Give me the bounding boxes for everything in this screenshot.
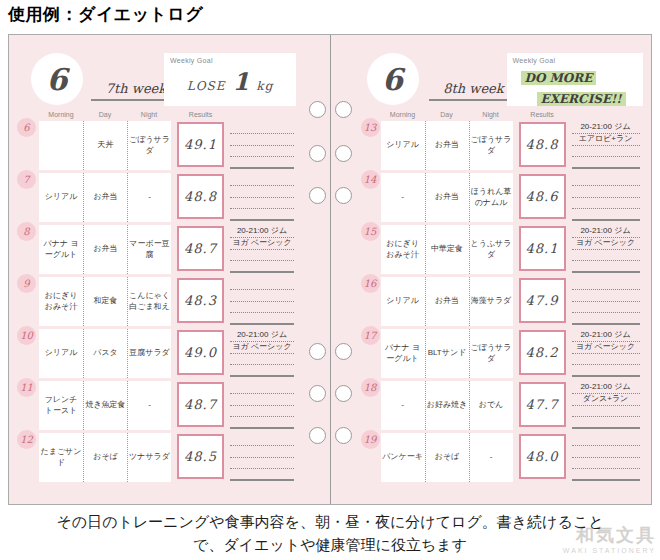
weight-value: 48.3 xyxy=(184,293,217,308)
meal-cells: バナナ ヨーグルト BLTサンド ごぼうサラダ xyxy=(381,329,513,378)
note-underline xyxy=(572,209,640,221)
morning-cell: おにぎり おみそ汁 xyxy=(39,277,83,326)
day-cell: 焼き魚定食 xyxy=(83,381,127,430)
day-number: 9 xyxy=(23,278,29,289)
column-headers: Morning Day Night Results xyxy=(9,111,224,118)
caption-line-2: で、ダイエットや健康管理に役立ちます xyxy=(0,533,660,556)
day-number-badge: 18 xyxy=(361,378,380,397)
week-label: 8th week xyxy=(429,81,519,101)
night-cell: ごぼうサラダ xyxy=(127,121,171,170)
meal-cells: - お弁当 ほうれん草 のナムル xyxy=(381,173,513,222)
night-cell: こんにゃく 白ごま和え xyxy=(127,277,171,326)
binder-hole xyxy=(309,101,326,118)
note-line: ヨガ ベーシック xyxy=(572,342,640,354)
note-line: 20-21:00 ジム xyxy=(230,330,294,342)
meal-cells: シリアル お弁当 ごぼうサラダ xyxy=(381,121,513,170)
day-number: 18 xyxy=(364,382,377,393)
weight-value: 48.1 xyxy=(526,241,559,256)
meal-cells: おにぎり おみそ汁 中華定食 とうふサラダ xyxy=(381,225,513,274)
day-cell: BLTサンド xyxy=(425,329,469,378)
results-box: 48.8 xyxy=(519,122,566,167)
goal-value: 1 xyxy=(231,67,252,96)
day-row: 6 天丼 ごぼうサラダ 49.1 xyxy=(9,121,330,170)
results-box: 48.5 xyxy=(177,434,224,479)
day-rows: 6 天丼 ごぼうサラダ 49.1 7 シリアル お弁当 - 48.8 xyxy=(9,121,330,485)
meal-cells: フレンチ トースト 焼き魚定食 - xyxy=(39,381,171,430)
day-rows: 13 シリアル お弁当 ごぼうサラダ 48.8 20-21:00 ジム エアロビ… xyxy=(331,121,652,485)
col-header-morning: Morning xyxy=(381,111,425,118)
notes-area xyxy=(230,277,294,325)
note-line xyxy=(230,186,294,198)
day-row: 11 フレンチ トースト 焼き魚定食 - 48.7 xyxy=(9,381,330,430)
day-row: 7 シリアル お弁当 - 48.8 xyxy=(9,173,330,222)
binder-hole xyxy=(335,385,352,402)
day-row: 15 おにぎり おみそ汁 中華定食 とうふサラダ 48.1 20-21:00 ジ… xyxy=(331,225,652,274)
note-line xyxy=(572,434,640,446)
day-number-badge: 19 xyxy=(361,430,380,449)
weight-value: 48.7 xyxy=(184,241,217,256)
day-number-badge: 13 xyxy=(361,118,380,137)
weekly-goal-box: Weekly Goal LOSE 1 kg xyxy=(164,53,296,106)
note-line: 20-21:00 ジム xyxy=(572,382,640,394)
day-row: 17 バナナ ヨーグルト BLTサンド ごぼうサラダ 48.2 20-21:00… xyxy=(331,329,652,378)
notes-area xyxy=(572,277,640,325)
weight-value: 48.8 xyxy=(184,189,217,204)
note-underline xyxy=(572,261,640,273)
note-line xyxy=(572,250,640,262)
day-number-badge: 14 xyxy=(361,170,380,189)
col-header-night: Night xyxy=(127,111,171,118)
note-underline xyxy=(230,365,294,377)
page-title: 使用例：ダイエットログ xyxy=(8,3,203,26)
note-line xyxy=(572,278,640,290)
notes-area: 20-21:00 ジム ヨガ ベーシック xyxy=(230,225,294,273)
note-line xyxy=(230,354,294,366)
day-cell: お弁当 xyxy=(425,173,469,222)
planner-spread: 6 7th week Weekly Goal LOSE 1 kg Morning… xyxy=(8,34,652,505)
night-cell: ほうれん草 のナムル xyxy=(469,173,513,222)
night-cell: とうふサラダ xyxy=(469,225,513,274)
note-line xyxy=(230,394,294,406)
note-line: ヨガ ベーシック xyxy=(230,238,294,250)
day-number: 16 xyxy=(364,278,377,289)
morning-cell: - xyxy=(381,173,425,222)
day-cell: 和定食 xyxy=(83,277,127,326)
night-cell: - xyxy=(127,173,171,222)
note-line xyxy=(230,134,294,146)
note-line xyxy=(230,446,294,458)
note-line xyxy=(572,354,640,366)
note-underline xyxy=(230,469,294,481)
morning-cell: シリアル xyxy=(39,173,83,222)
notes-area: 20-21:00 ジム エアロビ+ラン xyxy=(572,121,640,169)
meal-cells: バナナ ヨーグルト お弁当 マーボー豆腐 xyxy=(39,225,171,274)
day-row: 16 シリアル お弁当 海藻サラダ 47.9 xyxy=(331,277,652,326)
note-line xyxy=(572,174,640,186)
day-number-badge: 10 xyxy=(17,326,36,345)
notes-area xyxy=(230,433,294,481)
day-row: 9 おにぎり おみそ汁 和定食 こんにゃく 白ごま和え 48.3 xyxy=(9,277,330,326)
note-line xyxy=(230,458,294,470)
note-underline xyxy=(230,261,294,273)
day-row: 14 - お弁当 ほうれん草 のナムル 48.6 xyxy=(331,173,652,222)
day-cell: 中華定食 xyxy=(425,225,469,274)
day-number: 15 xyxy=(364,226,377,237)
day-row: 8 バナナ ヨーグルト お弁当 マーボー豆腐 48.7 20-21:00 ジム … xyxy=(9,225,330,274)
day-number-badge: 16 xyxy=(361,274,380,293)
binder-hole xyxy=(335,427,352,444)
note-line xyxy=(572,458,640,470)
note-underline xyxy=(572,417,640,429)
day-number: 19 xyxy=(364,434,377,445)
day-number-badge: 7 xyxy=(17,170,36,189)
note-line xyxy=(230,198,294,210)
day-number: 8 xyxy=(23,226,29,237)
col-header-results: Results xyxy=(519,111,566,118)
results-box: 49.1 xyxy=(177,122,224,167)
day-number: 17 xyxy=(364,330,377,341)
note-line xyxy=(230,434,294,446)
morning-cell: フレンチ トースト xyxy=(39,381,83,430)
day-number-badge: 17 xyxy=(361,326,380,345)
night-cell: ごぼうサラダ xyxy=(469,329,513,378)
col-header-day: Day xyxy=(425,111,469,118)
day-number: 12 xyxy=(20,434,33,445)
note-line xyxy=(230,146,294,158)
goal-line-2: EXERCISE!! xyxy=(537,92,626,106)
note-line xyxy=(572,186,640,198)
night-cell: - xyxy=(469,433,513,482)
note-line xyxy=(572,198,640,210)
night-cell: ツナサラダ xyxy=(127,433,171,482)
day-cell: お弁当 xyxy=(83,225,127,274)
weekly-goal-label: Weekly Goal xyxy=(513,57,556,64)
weight-value: 48.8 xyxy=(526,137,559,152)
results-box: 48.8 xyxy=(177,174,224,219)
note-line xyxy=(230,382,294,394)
binder-hole xyxy=(309,343,326,360)
notes-area xyxy=(230,121,294,169)
caption-text: その日のトレーニングや食事内容を、朝・昼・夜に分けてログ。書き続けること で、ダ… xyxy=(0,510,660,557)
night-cell: マーボー豆腐 xyxy=(127,225,171,274)
results-box: 48.2 xyxy=(519,330,566,375)
notes-area: 20-21:00 ジム ダンス+ラン xyxy=(572,381,640,429)
weight-value: 47.9 xyxy=(526,293,559,308)
column-headers: Morning Day Night Results xyxy=(331,111,566,118)
morning-cell: シリアル xyxy=(381,277,425,326)
results-box: 48.0 xyxy=(519,434,566,479)
results-box: 49.0 xyxy=(177,330,224,375)
goal-pre: LOSE xyxy=(187,79,226,93)
day-row: 10 シリアル パスタ 豆腐サラダ 49.0 20-21:00 ジム ヨガ ベー… xyxy=(9,329,330,378)
meal-cells: 天丼 ごぼうサラダ xyxy=(39,121,171,170)
day-number-badge: 6 xyxy=(17,118,36,137)
results-box: 48.3 xyxy=(177,278,224,323)
day-cell: おそば xyxy=(83,433,127,482)
night-cell: - xyxy=(127,381,171,430)
meal-cells: シリアル パスタ 豆腐サラダ xyxy=(39,329,171,378)
day-row: 13 シリアル お弁当 ごぼうサラダ 48.8 20-21:00 ジム エアロビ… xyxy=(331,121,652,170)
month-badge: 6 xyxy=(31,53,83,105)
day-number: 6 xyxy=(23,122,29,133)
morning-cell: おにぎり おみそ汁 xyxy=(381,225,425,274)
day-cell: パスタ xyxy=(83,329,127,378)
results-box: 48.7 xyxy=(177,226,224,271)
col-header-morning: Morning xyxy=(39,111,83,118)
results-box: 48.6 xyxy=(519,174,566,219)
binder-hole xyxy=(335,101,352,118)
notes-area xyxy=(572,173,640,221)
weight-value: 48.6 xyxy=(526,189,559,204)
note-underline xyxy=(572,157,640,169)
note-line xyxy=(572,290,640,302)
weight-value: 49.1 xyxy=(184,137,217,152)
meal-cells: シリアル お弁当 - xyxy=(39,173,171,222)
weekly-goal-label: Weekly Goal xyxy=(170,57,213,64)
notes-area xyxy=(572,433,640,481)
night-cell: 海藻サラダ xyxy=(469,277,513,326)
morning-cell: - xyxy=(381,381,425,430)
day-number: 10 xyxy=(20,330,33,341)
day-cell: お弁当 xyxy=(425,121,469,170)
day-number: 11 xyxy=(20,382,33,393)
planner-page-right: 6 8th week Weekly Goal DO MORE EXERCISE!… xyxy=(331,35,652,504)
note-line: エアロビ+ラン xyxy=(572,134,640,146)
morning-cell: パンケーキ xyxy=(381,433,425,482)
binder-hole xyxy=(309,427,326,444)
binder-hole xyxy=(309,145,326,162)
binder-hole xyxy=(309,385,326,402)
results-box: 48.1 xyxy=(519,226,566,271)
weekly-goal-box: Weekly Goal DO MORE EXERCISE!! xyxy=(507,53,643,106)
night-cell: 豆腐サラダ xyxy=(127,329,171,378)
day-number-badge: 15 xyxy=(361,222,380,241)
weight-value: 48.7 xyxy=(184,397,217,412)
day-number: 7 xyxy=(23,174,29,185)
day-row: 19 パンケーキ おそば - 48.0 xyxy=(331,433,652,482)
weight-value: 48.2 xyxy=(526,345,559,360)
morning-cell: バナナ ヨーグルト xyxy=(39,225,83,274)
goal-unit: kg xyxy=(256,79,273,93)
day-number: 14 xyxy=(364,174,377,185)
weight-value: 49.0 xyxy=(184,345,217,360)
weight-value: 47.7 xyxy=(526,397,559,412)
note-line xyxy=(572,406,640,418)
note-underline xyxy=(230,417,294,429)
note-line xyxy=(230,250,294,262)
col-header-day: Day xyxy=(83,111,127,118)
notes-area: 20-21:00 ジム ヨガ ベーシック xyxy=(230,329,294,377)
day-number-badge: 9 xyxy=(17,274,36,293)
morning-cell xyxy=(39,121,83,170)
note-line xyxy=(572,302,640,314)
note-line: 20-21:00 ジム xyxy=(230,226,294,238)
binder-hole xyxy=(335,343,352,360)
note-underline xyxy=(230,313,294,325)
weight-value: 48.0 xyxy=(526,449,559,464)
month-badge: 6 xyxy=(367,53,419,105)
meal-cells: パンケーキ おそば - xyxy=(381,433,513,482)
note-line xyxy=(230,302,294,314)
day-number: 13 xyxy=(364,122,377,133)
note-underline xyxy=(230,157,294,169)
note-line xyxy=(230,406,294,418)
notes-area: 20-21:00 ジム ヨガ ベーシック xyxy=(572,225,640,273)
day-cell: 天丼 xyxy=(83,121,127,170)
meal-cells: たまごサンド おそば ツナサラダ xyxy=(39,433,171,482)
binder-hole xyxy=(335,145,352,162)
day-number-badge: 11 xyxy=(17,378,36,397)
notes-area xyxy=(230,381,294,429)
note-underline xyxy=(230,209,294,221)
results-box: 47.7 xyxy=(519,382,566,427)
caption-line-1: その日のトレーニングや食事内容を、朝・昼・夜に分けてログ。書き続けること xyxy=(0,510,660,533)
col-header-results: Results xyxy=(177,111,224,118)
morning-cell: バナナ ヨーグルト xyxy=(381,329,425,378)
night-cell: ごぼうサラダ xyxy=(469,121,513,170)
day-number-badge: 8 xyxy=(17,222,36,241)
note-line: 20-21:00 ジム xyxy=(572,330,640,342)
binder-hole xyxy=(335,187,352,204)
morning-cell: シリアル xyxy=(381,121,425,170)
day-cell: おそば xyxy=(425,433,469,482)
month-number: 6 xyxy=(382,62,403,97)
note-line: 20-21:00 ジム xyxy=(572,226,640,238)
note-line: ヨガ ベーシック xyxy=(572,238,640,250)
note-line xyxy=(230,278,294,290)
planner-page-left: 6 7th week Weekly Goal LOSE 1 kg Morning… xyxy=(9,35,331,504)
morning-cell: たまごサンド xyxy=(39,433,83,482)
day-number-badge: 12 xyxy=(17,430,36,449)
meal-cells: おにぎり おみそ汁 和定食 こんにゃく 白ごま和え xyxy=(39,277,171,326)
note-underline xyxy=(572,469,640,481)
note-line xyxy=(230,122,294,134)
note-underline xyxy=(572,365,640,377)
note-line xyxy=(572,446,640,458)
note-underline xyxy=(572,313,640,325)
note-line xyxy=(230,174,294,186)
day-row: 12 たまごサンド おそば ツナサラダ 48.5 xyxy=(9,433,330,482)
day-cell: お弁当 xyxy=(83,173,127,222)
month-number: 6 xyxy=(47,62,68,97)
night-cell: おでん xyxy=(469,381,513,430)
meal-cells: - お好み焼き おでん xyxy=(381,381,513,430)
binder-hole xyxy=(309,187,326,204)
note-line: 20-21:00 ジム xyxy=(572,122,640,134)
note-line xyxy=(230,290,294,302)
notes-area: 20-21:00 ジム ヨガ ベーシック xyxy=(572,329,640,377)
day-row: 18 - お好み焼き おでん 47.7 20-21:00 ジム ダンス+ラン xyxy=(331,381,652,430)
col-header-night: Night xyxy=(469,111,513,118)
day-cell: お好み焼き xyxy=(425,381,469,430)
note-line: ダンス+ラン xyxy=(572,394,640,406)
meal-cells: シリアル お弁当 海藻サラダ xyxy=(381,277,513,326)
goal-line-1: DO MORE xyxy=(521,71,597,85)
results-box: 47.9 xyxy=(519,278,566,323)
note-line: ヨガ ベーシック xyxy=(230,342,294,354)
weight-value: 48.5 xyxy=(184,449,217,464)
notes-area xyxy=(230,173,294,221)
morning-cell: シリアル xyxy=(39,329,83,378)
day-cell: お弁当 xyxy=(425,277,469,326)
results-box: 48.7 xyxy=(177,382,224,427)
note-line xyxy=(572,146,640,158)
